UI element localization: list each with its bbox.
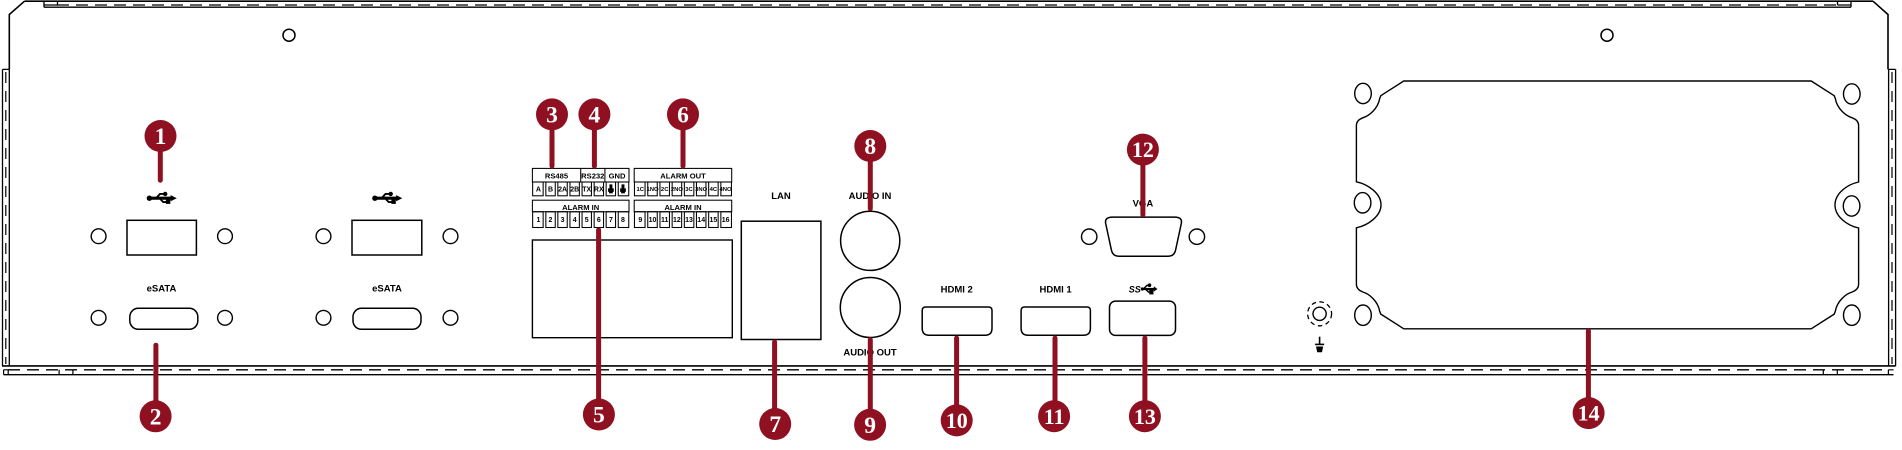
- svg-text:16: 16: [722, 217, 730, 224]
- svg-text:1NO: 1NO: [646, 187, 659, 193]
- svg-text:12: 12: [1132, 137, 1154, 162]
- svg-text:1C: 1C: [637, 187, 645, 193]
- svg-text:5: 5: [585, 217, 589, 224]
- svg-text:4C: 4C: [710, 187, 718, 193]
- svg-text:3: 3: [546, 103, 558, 129]
- svg-text:3C: 3C: [685, 187, 693, 193]
- svg-text:9: 9: [864, 413, 876, 439]
- svg-text:A: A: [536, 186, 541, 193]
- svg-text:2A: 2A: [558, 186, 567, 193]
- svg-text:4: 4: [573, 217, 577, 224]
- svg-text:2B: 2B: [570, 186, 579, 193]
- svg-text:7: 7: [769, 412, 781, 438]
- svg-text:6: 6: [677, 103, 689, 129]
- svg-text:eSATA: eSATA: [147, 284, 177, 295]
- svg-text:B: B: [548, 186, 553, 193]
- svg-text:SS: SS: [1129, 285, 1141, 295]
- svg-text:8: 8: [864, 134, 876, 160]
- svg-text:4NO: 4NO: [720, 187, 733, 193]
- svg-text:14: 14: [697, 217, 705, 224]
- svg-text:8: 8: [621, 217, 625, 224]
- svg-text:15: 15: [710, 217, 718, 224]
- svg-text:RS232: RS232: [581, 172, 604, 181]
- svg-text:3NO: 3NO: [695, 187, 708, 193]
- svg-text:14: 14: [1578, 401, 1600, 426]
- svg-text:11: 11: [1044, 404, 1065, 429]
- svg-text:ALARM IN: ALARM IN: [664, 203, 701, 212]
- svg-text:6: 6: [597, 217, 601, 224]
- svg-text:4: 4: [589, 103, 601, 129]
- svg-text:12: 12: [673, 217, 681, 224]
- svg-text:HDMI 1: HDMI 1: [1039, 284, 1072, 295]
- svg-text:TX: TX: [582, 186, 591, 193]
- svg-text:10: 10: [946, 408, 968, 433]
- svg-text:11: 11: [661, 217, 669, 224]
- svg-text:3: 3: [561, 217, 565, 224]
- svg-text:RS485: RS485: [545, 172, 569, 181]
- svg-text:5: 5: [593, 403, 605, 429]
- svg-text:13: 13: [685, 217, 693, 224]
- svg-text:ALARM OUT: ALARM OUT: [660, 172, 706, 181]
- svg-text:1: 1: [536, 217, 540, 224]
- svg-text:2NO: 2NO: [671, 187, 684, 193]
- svg-text:1: 1: [155, 124, 167, 150]
- svg-text:GND: GND: [609, 172, 626, 181]
- svg-text:HDMI 2: HDMI 2: [941, 284, 973, 295]
- svg-text:RX: RX: [594, 186, 604, 193]
- svg-text:13: 13: [1134, 404, 1156, 429]
- svg-text:7: 7: [609, 217, 613, 224]
- svg-text:ALARM IN: ALARM IN: [562, 203, 599, 212]
- svg-text:LAN: LAN: [771, 191, 791, 202]
- svg-text:2C: 2C: [661, 187, 669, 193]
- svg-text:10: 10: [649, 217, 657, 224]
- svg-text:eSATA: eSATA: [372, 284, 402, 295]
- svg-text:2: 2: [549, 217, 553, 224]
- svg-text:9: 9: [638, 217, 642, 224]
- svg-text:2: 2: [150, 404, 162, 430]
